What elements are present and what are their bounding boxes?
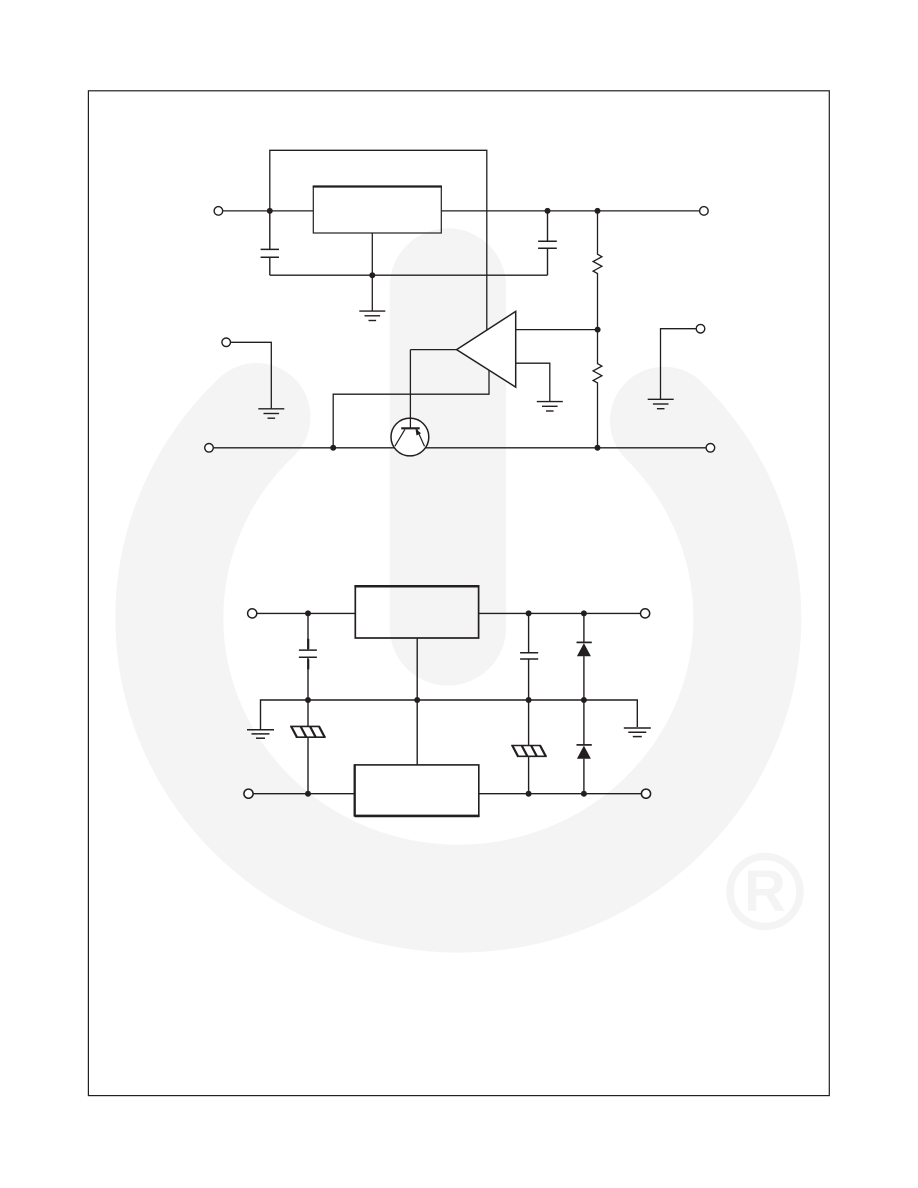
svg-text:R: R <box>744 859 786 924</box>
